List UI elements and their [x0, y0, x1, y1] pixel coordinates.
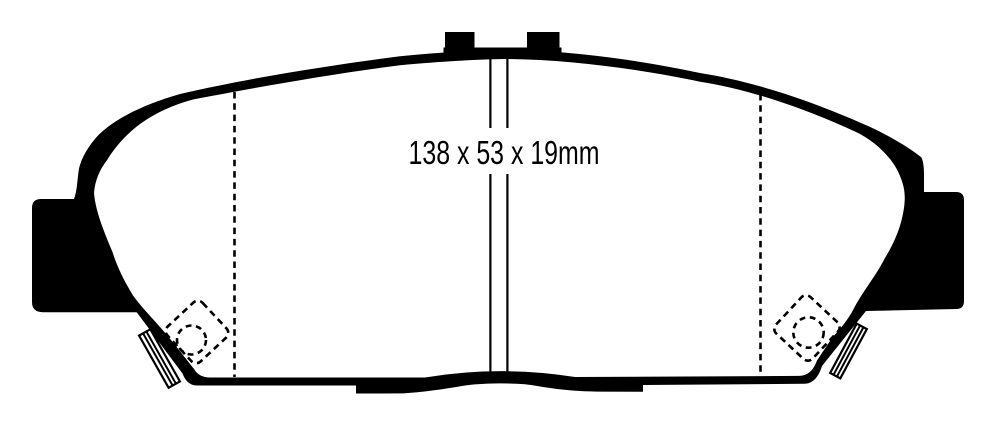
- svg-text:138 x 53 x 19mm: 138 x 53 x 19mm: [409, 134, 600, 171]
